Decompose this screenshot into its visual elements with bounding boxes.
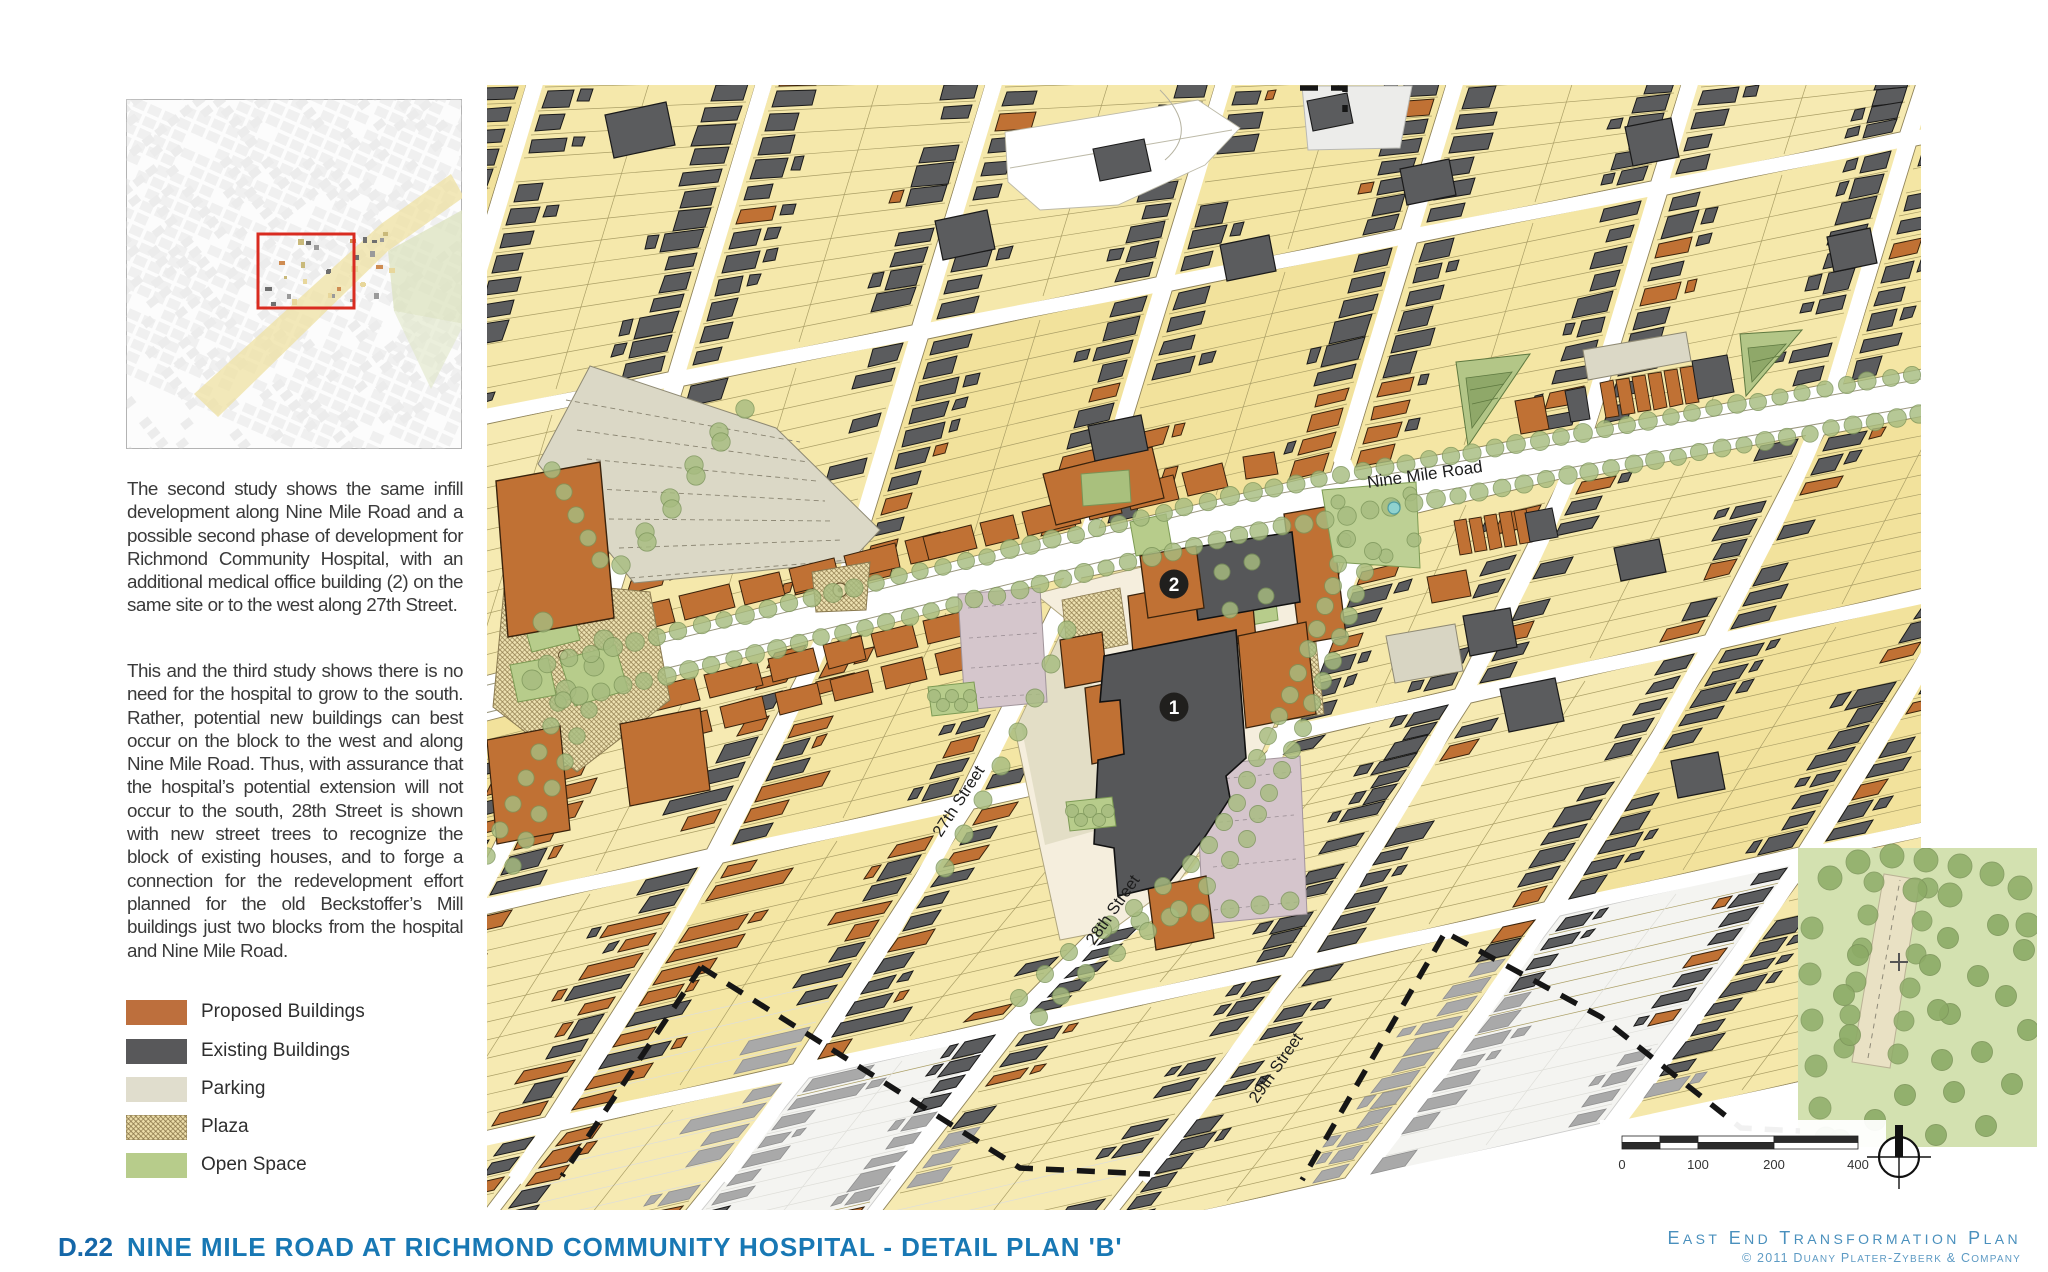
svg-text:100: 100 — [1687, 1157, 1709, 1172]
svg-text:400: 400 — [1847, 1157, 1869, 1172]
svg-text:0: 0 — [1618, 1157, 1625, 1172]
svg-text:2: 2 — [1169, 575, 1180, 596]
svg-text:1: 1 — [1169, 698, 1180, 719]
svg-text:200: 200 — [1763, 1157, 1785, 1172]
